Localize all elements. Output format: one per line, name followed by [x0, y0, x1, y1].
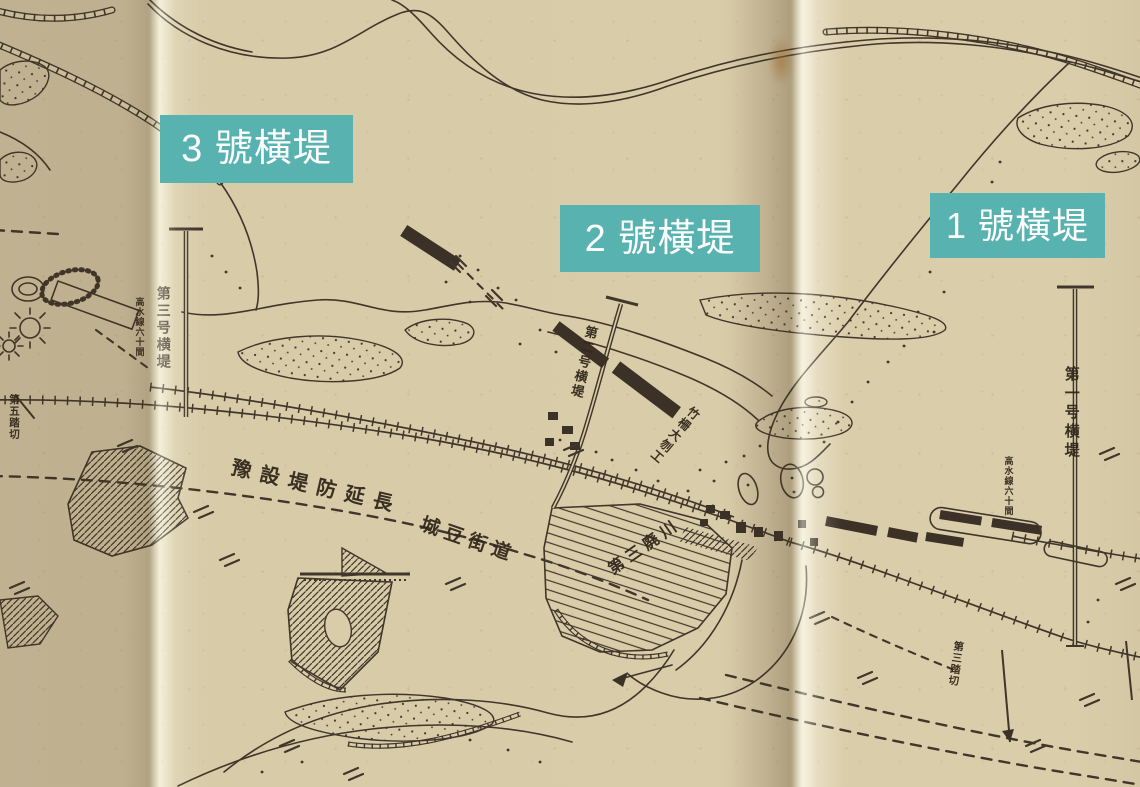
spur-dike-bars [400, 225, 1108, 568]
map-page: 第三号横堤 高水線六十間 第二号横堤 竹柵大刎工 第一号横堤 高水線六十間 第五… [0, 0, 1140, 787]
overlay-label-dike-1: 1 號橫堤 [930, 193, 1105, 258]
topleft-symbols [0, 264, 139, 418]
hatched-areas [0, 446, 758, 690]
flow-arrow [612, 672, 628, 687]
overlay-label-dike-3: 3 號橫堤 [160, 115, 353, 183]
overlay-label-dike-2: 2 號橫堤 [560, 205, 760, 272]
crossing-marks [1002, 641, 1132, 742]
